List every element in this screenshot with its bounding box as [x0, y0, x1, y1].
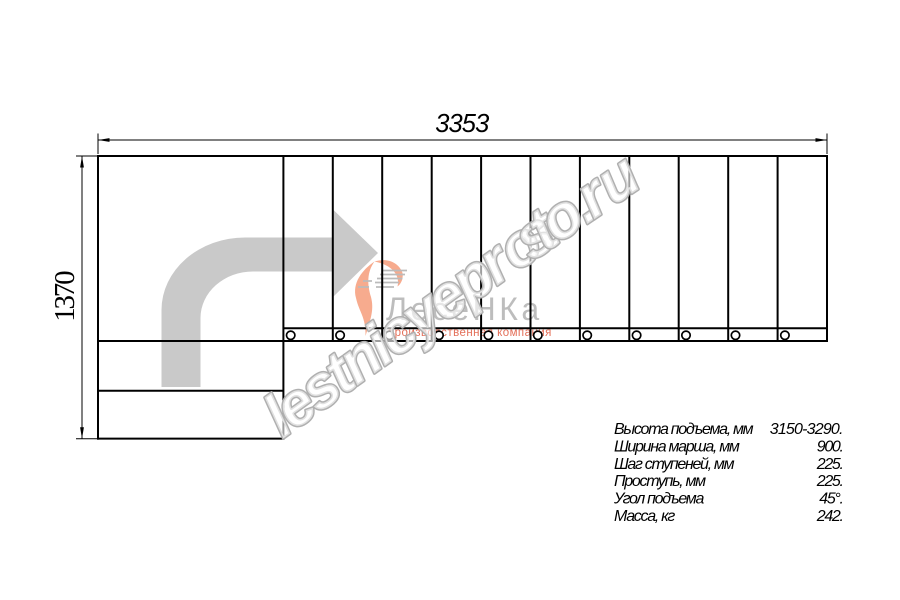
svg-text:Высота подъема, мм: Высота подъема, мм [614, 421, 754, 438]
svg-text:242.: 242. [816, 508, 843, 525]
svg-text:Шаг ступеней, мм: Шаг ступеней, мм [614, 456, 735, 473]
svg-text:225.: 225. [816, 473, 843, 490]
svg-text:Масса, кг: Масса, кг [614, 508, 675, 525]
svg-text:900.: 900. [817, 438, 843, 455]
svg-text:225.: 225. [816, 456, 843, 473]
svg-text:45°.: 45°. [819, 491, 842, 508]
svg-text:Угол подъема: Угол подъема [613, 491, 704, 508]
svg-text:3353: 3353 [435, 110, 489, 138]
svg-text:1370: 1370 [49, 271, 81, 322]
svg-text:3150-3290.: 3150-3290. [770, 421, 843, 438]
svg-text:Ширина марша, мм: Ширина марша, мм [614, 438, 740, 455]
svg-text:Проступь, мм: Проступь, мм [614, 473, 706, 490]
